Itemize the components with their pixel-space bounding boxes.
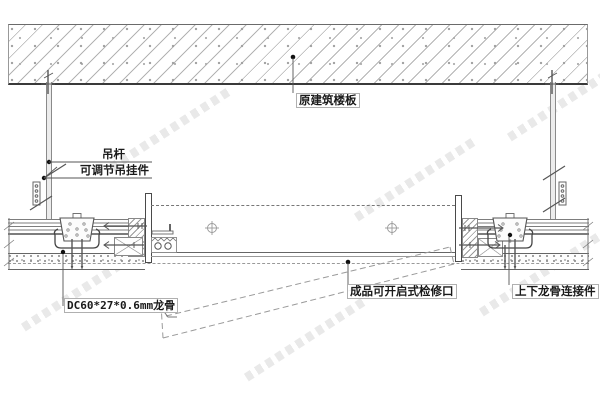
keel-carrier-right	[487, 214, 532, 271]
hanger-rod-label: 吊杆	[102, 148, 125, 161]
cut-edge-left	[4, 218, 14, 269]
keel-label: DC60*27*0.6mm龙骨	[64, 298, 178, 313]
adjustable-hanger-label: 可调节吊挂件	[80, 164, 149, 177]
panel-hinge-detail	[152, 224, 177, 253]
access-panel-label: 成品可开启式检修口	[347, 284, 457, 299]
frame-screws-left	[104, 223, 147, 249]
leader-dot-keel	[61, 250, 65, 254]
leader-lines	[42, 55, 509, 306]
adjustable-hanger-clip-left	[30, 164, 66, 210]
keel-connector-label: 上下龙骨连接件	[512, 284, 599, 299]
drawing-canvas: 原建筑楼板 吊杆 可调节吊挂件 DC60*27*0.6mm龙骨 成品可开启式检修…	[0, 0, 600, 400]
slab-label: 原建筑楼板	[296, 93, 360, 108]
anchor-bolt-right	[545, 70, 559, 94]
keel-carrier-left	[54, 214, 99, 271]
detail-linework	[0, 0, 600, 400]
cut-edge-right	[583, 218, 593, 269]
screw-head-icon	[205, 221, 399, 235]
leader-dot-connector	[508, 233, 512, 237]
adjustable-hanger-clip-right	[543, 166, 566, 212]
anchor-bolt-left	[41, 70, 55, 94]
